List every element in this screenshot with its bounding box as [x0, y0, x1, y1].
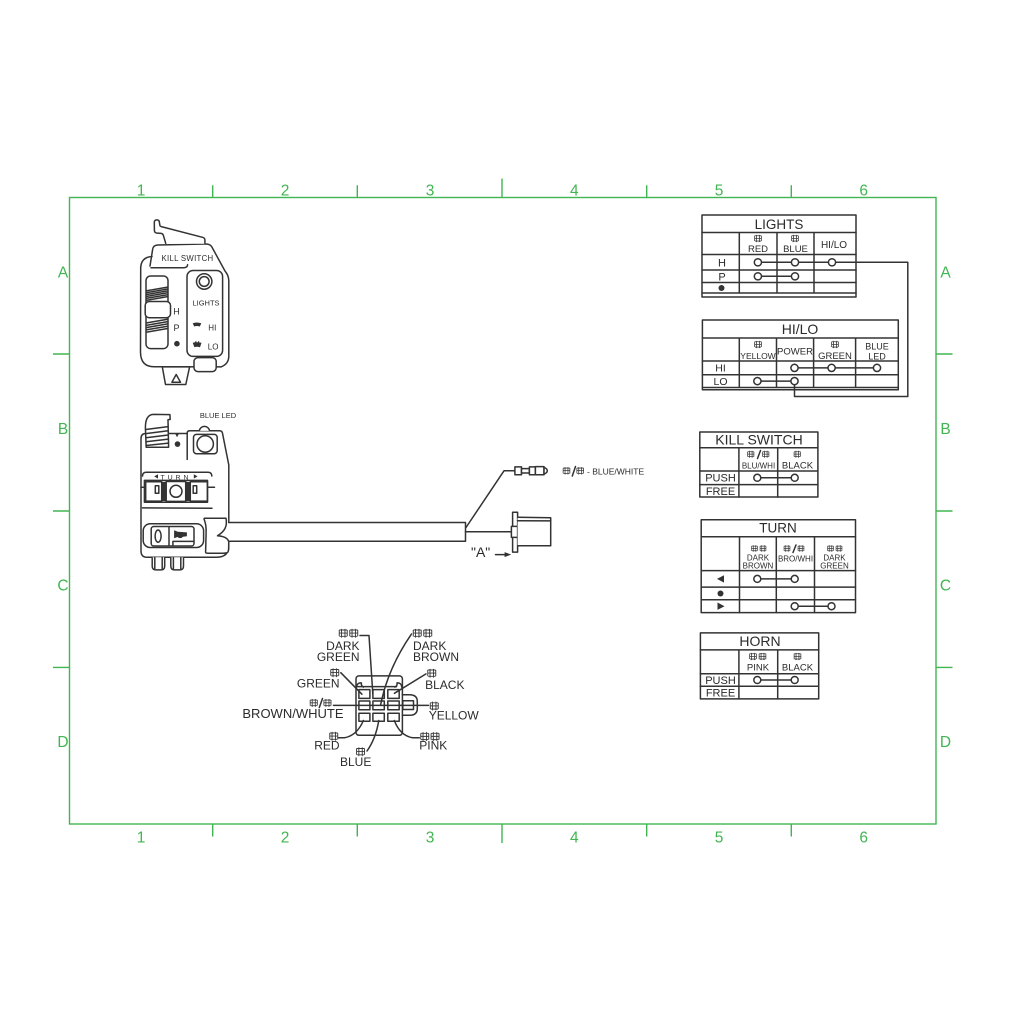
svg-text:BLUE: BLUE: [783, 244, 808, 255]
svg-text:LED: LED: [868, 352, 886, 362]
svg-text:H: H: [718, 258, 726, 270]
svg-text:P: P: [173, 323, 179, 333]
svg-text:2: 2: [281, 182, 290, 199]
svg-text:PUSH: PUSH: [705, 675, 736, 687]
svg-text:LO: LO: [713, 376, 727, 388]
svg-text:5: 5: [715, 182, 724, 199]
svg-text:HI: HI: [715, 363, 726, 375]
svg-text:BLACK: BLACK: [782, 461, 814, 472]
svg-text:BLACK: BLACK: [782, 663, 814, 674]
svg-text:LIGHTS: LIGHTS: [192, 299, 219, 308]
svg-text:GREEN: GREEN: [317, 650, 360, 664]
svg-text:GREEN: GREEN: [820, 562, 849, 571]
svg-text:FREE: FREE: [706, 688, 735, 700]
svg-text:KILL SWITCH: KILL SWITCH: [715, 432, 802, 448]
svg-text:BLACK: BLACK: [425, 678, 464, 692]
svg-text:BLUE: BLUE: [340, 755, 371, 769]
svg-text:KILL SWITCH: KILL SWITCH: [162, 254, 214, 263]
svg-text:PINK: PINK: [419, 739, 447, 753]
svg-text:BRO/WHI: BRO/WHI: [778, 555, 813, 564]
svg-text:D: D: [940, 734, 951, 751]
svg-text:2: 2: [281, 830, 290, 847]
svg-text:POWER: POWER: [777, 347, 813, 358]
svg-text:D: D: [57, 734, 68, 751]
svg-text:C: C: [940, 578, 951, 595]
svg-text:3: 3: [426, 830, 435, 847]
svg-text:HORN: HORN: [739, 633, 780, 649]
svg-text:6: 6: [859, 182, 868, 199]
svg-text:RED: RED: [314, 739, 340, 753]
svg-text:3: 3: [426, 182, 435, 199]
svg-text:"A": "A": [471, 544, 490, 560]
svg-text:H: H: [173, 307, 180, 317]
svg-text:RED: RED: [748, 244, 768, 255]
svg-text:A: A: [940, 264, 951, 281]
svg-text:GREEN: GREEN: [297, 677, 340, 691]
svg-text:- BLUE/WHITE: - BLUE/WHITE: [587, 467, 644, 477]
svg-text:5: 5: [715, 830, 724, 847]
svg-text:BROWN: BROWN: [413, 650, 459, 664]
svg-text:GREEN: GREEN: [818, 351, 852, 362]
svg-text:PUSH: PUSH: [705, 473, 736, 485]
svg-text:HI: HI: [208, 324, 216, 333]
svg-text:BROWN: BROWN: [743, 562, 774, 571]
svg-text:YELLOW: YELLOW: [429, 708, 480, 722]
svg-text:C: C: [57, 578, 68, 595]
svg-text:A: A: [58, 264, 69, 281]
svg-text:P: P: [718, 272, 725, 284]
svg-text:LIGHTS: LIGHTS: [755, 217, 804, 232]
svg-text:LO: LO: [208, 342, 219, 351]
svg-text:PINK: PINK: [747, 663, 770, 674]
svg-text:BROWN/WHUTE: BROWN/WHUTE: [242, 706, 343, 721]
svg-text:B: B: [58, 421, 68, 438]
svg-text:YELLOW: YELLOW: [740, 351, 775, 361]
svg-text:4: 4: [570, 182, 579, 199]
svg-text:BLUE LED: BLUE LED: [200, 411, 237, 420]
svg-text:1: 1: [137, 830, 146, 847]
svg-text:6: 6: [859, 830, 868, 847]
svg-text:HI/LO: HI/LO: [821, 240, 847, 251]
svg-text:TURN: TURN: [759, 521, 797, 536]
svg-text:1: 1: [137, 182, 146, 199]
svg-text:FREE: FREE: [706, 486, 735, 498]
svg-text:BLU/WHI: BLU/WHI: [742, 462, 775, 471]
svg-text:4: 4: [570, 830, 579, 847]
svg-text:B: B: [940, 421, 950, 438]
svg-text:HI/LO: HI/LO: [782, 321, 819, 337]
svg-text:BLUE: BLUE: [865, 342, 889, 352]
